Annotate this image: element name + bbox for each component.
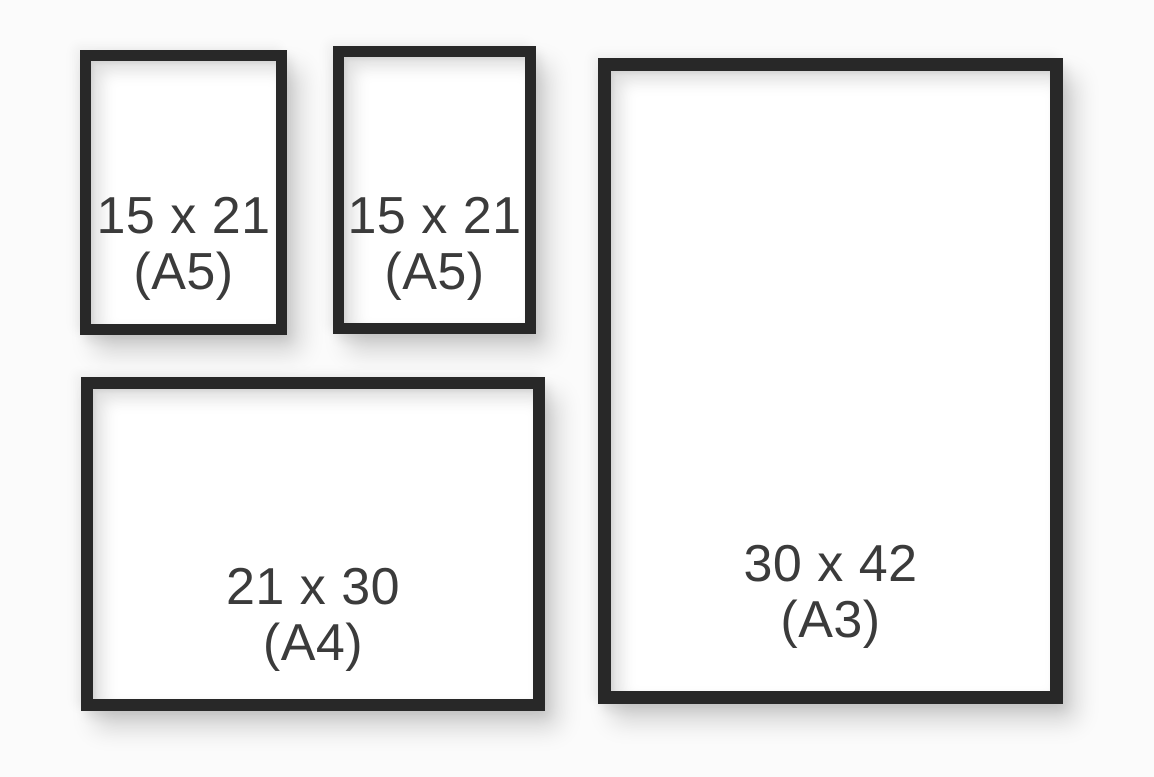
frame-a5-middle-label: 15 x 21 (A5) xyxy=(344,188,525,300)
format-label: (A3) xyxy=(611,592,1050,648)
frame-a3-right: 30 x 42 (A3) xyxy=(598,58,1063,704)
format-label: (A5) xyxy=(91,244,276,300)
frame-a4-bottom: 21 x 30 (A4) xyxy=(81,377,545,711)
frame-a5-left-label: 15 x 21 (A5) xyxy=(91,188,276,300)
size-label: 15 x 21 xyxy=(344,188,525,244)
size-label: 30 x 42 xyxy=(611,536,1050,592)
size-label: 21 x 30 xyxy=(93,559,533,615)
frame-a4-label: 21 x 30 (A4) xyxy=(93,559,533,671)
format-label: (A4) xyxy=(93,615,533,671)
format-label: (A5) xyxy=(344,244,525,300)
frame-a3-label: 30 x 42 (A3) xyxy=(611,536,1050,648)
frame-a5-left: 15 x 21 (A5) xyxy=(80,50,287,335)
frame-size-comparison-image: 15 x 21 (A5) 15 x 21 (A5) 30 x 42 (A3) 2… xyxy=(0,0,1154,777)
size-label: 15 x 21 xyxy=(91,188,276,244)
frame-a5-middle: 15 x 21 (A5) xyxy=(333,46,536,334)
